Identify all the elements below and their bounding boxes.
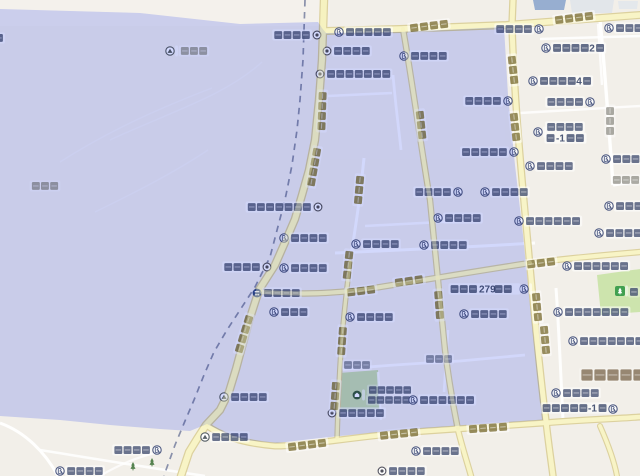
svg-text:-1: -1 xyxy=(556,134,565,145)
svg-text:-1: -1 xyxy=(588,404,597,415)
svg-text:2: 2 xyxy=(589,44,595,55)
svg-text:4: 4 xyxy=(576,77,582,88)
